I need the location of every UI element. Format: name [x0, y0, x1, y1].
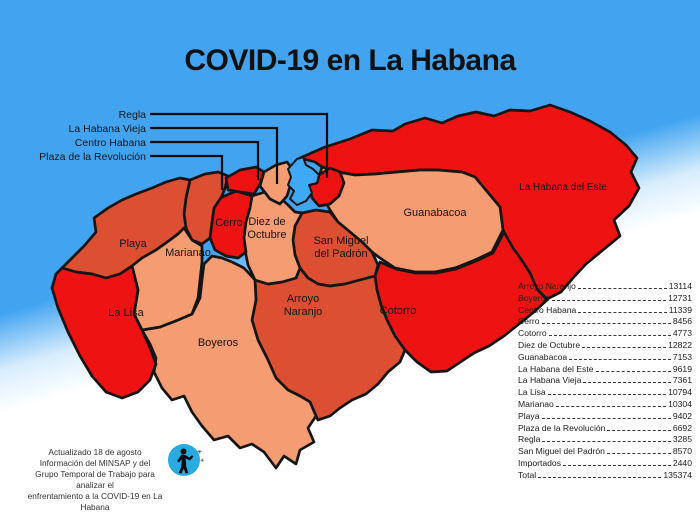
table-row: La Habana del Este9619	[518, 364, 692, 376]
map-label-cerro: Cerro	[215, 217, 243, 229]
table-row: Plaza de la Revolución6692	[518, 423, 692, 435]
row-value: 8570	[673, 446, 692, 458]
row-name: La Habana del Este	[518, 364, 594, 376]
table-row: Guanabacoa7153	[518, 352, 692, 364]
leader	[549, 335, 671, 336]
row-value: 9619	[673, 364, 692, 376]
map-label-diez-de-octubre-2: Octubre	[247, 229, 286, 241]
row-name: Centro Habana	[518, 305, 576, 317]
table-row: La Habana Vieja7361	[518, 375, 692, 387]
row-value: 10794	[668, 387, 692, 399]
leader	[538, 477, 661, 478]
table-row: Cerro8456	[518, 316, 692, 328]
table-row: Boyeros12731	[518, 293, 692, 305]
row-name: Total	[518, 470, 536, 482]
row-value: 11339	[669, 305, 692, 317]
leader	[578, 312, 666, 313]
table-row: Arroyo Naranjo13114	[518, 281, 692, 293]
svg-text:✳: ✳	[200, 458, 204, 464]
leader	[607, 430, 670, 431]
table-row: Total135374	[518, 470, 692, 482]
row-value: 7153	[673, 352, 692, 364]
row-name: Boyeros	[518, 293, 550, 305]
row-value: 2440	[673, 458, 692, 470]
leader	[542, 441, 670, 442]
row-name: Regla	[518, 434, 540, 446]
credit-line: Grupo Temporal de Trabajo para analizar …	[26, 469, 164, 491]
row-name: Cerro	[518, 316, 540, 328]
leader	[563, 465, 671, 466]
leader	[583, 382, 670, 383]
row-name: Diez de Octubre	[518, 340, 580, 352]
map-label-arroyo-naranjo-1: Arroyo	[287, 293, 319, 305]
infographic: COVID-19 en La Habana	[0, 0, 700, 513]
map-label-arroyo-naranjo-2: Naranjo	[284, 306, 323, 318]
leader	[596, 371, 671, 372]
row-name: Playa	[518, 411, 540, 423]
giraldilla-icon: ✳ ✳	[164, 440, 208, 484]
leader	[542, 323, 671, 324]
row-name: Arroyo Naranjo	[518, 281, 576, 293]
table-row: Centro Habana11339	[518, 305, 692, 317]
row-name: Importados	[518, 458, 561, 470]
map-label-marianao: Marianao	[165, 247, 211, 259]
row-value: 6692	[673, 423, 692, 435]
credit-block: Actualizado 18 de agosto Información del…	[26, 447, 164, 513]
table-row: San Miguel del Padrón8570	[518, 446, 692, 458]
map-label-boyeros: Boyeros	[198, 337, 239, 349]
credit-line: enfrentamiento a la COVID-19 en La Haban…	[26, 491, 164, 513]
map-label-guanabacoa: Guanabacoa	[404, 207, 468, 219]
map-label-diez-de-octubre-1: Diez de	[248, 216, 285, 228]
svg-text:✳: ✳	[197, 449, 202, 456]
row-name: Guanabacoa	[518, 352, 567, 364]
row-value: 10304	[668, 399, 692, 411]
leader	[607, 453, 671, 454]
row-value: 12731	[668, 293, 692, 305]
map-label-la-lisa: La Lisa	[108, 307, 144, 319]
callout-label-plaza: Plaza de la Revolución	[39, 151, 146, 163]
credit-line: Actualizado 18 de agosto	[26, 447, 164, 458]
leader	[552, 300, 667, 301]
row-name: La Lisa	[518, 387, 546, 399]
row-value: 13114	[669, 281, 692, 293]
leader	[548, 394, 666, 395]
cases-table: Arroyo Naranjo13114 Boyeros12731 Centro …	[518, 281, 692, 482]
row-value: 9402	[673, 411, 692, 423]
row-name: Marianao	[518, 399, 554, 411]
map-label-san-miguel-2: del Padrón	[314, 248, 367, 260]
map-label-playa: Playa	[119, 238, 147, 250]
table-row: Regla3285	[518, 434, 692, 446]
table-row: Cotorro4773	[518, 328, 692, 340]
table-row: Diez de Octubre12822	[518, 340, 692, 352]
row-value: 7361	[673, 375, 692, 387]
leader	[542, 418, 671, 419]
row-name: Plaza de la Revolución	[518, 423, 605, 435]
leader	[569, 359, 671, 360]
credit-line: Información del MINSAP y del	[26, 458, 164, 469]
table-row: Marianao10304	[518, 399, 692, 411]
row-value: 3285	[673, 434, 692, 446]
map-label-la-habana-del-este: La Habana del Este	[519, 182, 607, 193]
leader	[578, 288, 667, 289]
row-value: 12822	[668, 340, 692, 352]
row-name: La Habana Vieja	[518, 375, 581, 387]
row-value: 4773	[673, 328, 692, 340]
row-value: 135374	[663, 470, 692, 482]
callout-label-regla: Regla	[119, 109, 147, 121]
leader	[582, 347, 666, 348]
table-row: La Lisa10794	[518, 387, 692, 399]
row-name: San Miguel del Padrón	[518, 446, 605, 458]
row-value: 8456	[673, 316, 692, 328]
callout-label-centro-habana: Centro Habana	[75, 137, 146, 149]
row-name: Cotorro	[518, 328, 547, 340]
table-row: Playa9402	[518, 411, 692, 423]
map-label-cotorro: Cotorro	[380, 305, 417, 317]
table-row: Importados2440	[518, 458, 692, 470]
map-label-san-miguel-1: San Miguel	[313, 235, 368, 247]
leader	[556, 406, 666, 407]
callout-label-habana-vieja: La Habana Vieja	[69, 123, 147, 135]
